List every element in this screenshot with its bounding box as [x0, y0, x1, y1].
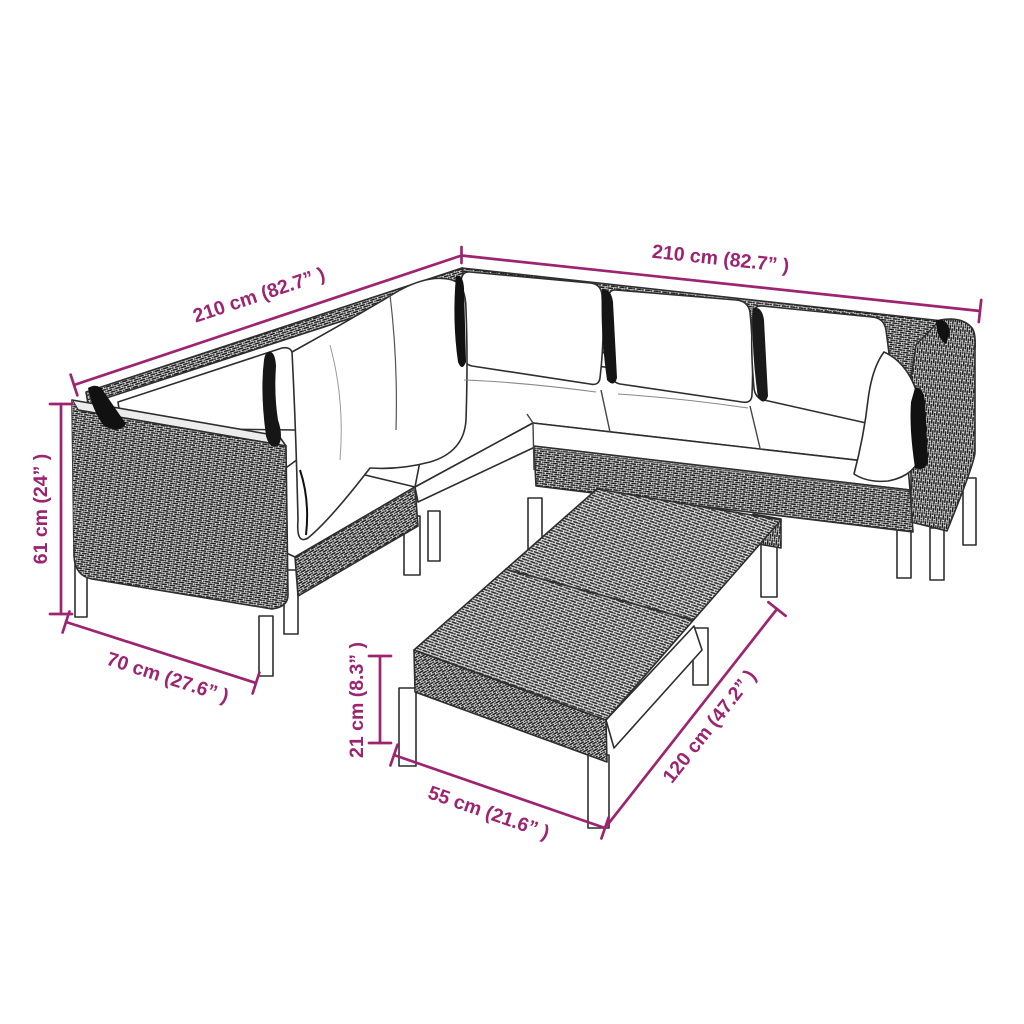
svg-text:21 cm (8.3” ): 21 cm (8.3” )	[346, 642, 368, 758]
svg-text:61 cm (24” ): 61 cm (24” )	[30, 454, 52, 565]
